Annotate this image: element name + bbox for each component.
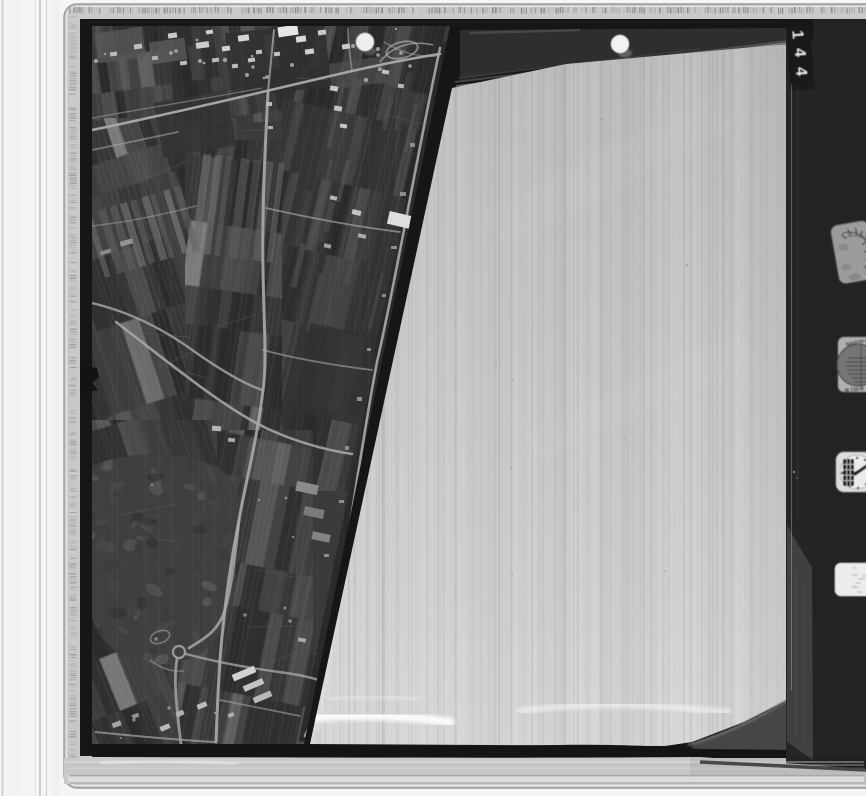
svg-text:4: 4	[792, 66, 810, 76]
svg-text:1: 1	[788, 30, 806, 40]
svg-text:4: 4	[791, 47, 809, 57]
